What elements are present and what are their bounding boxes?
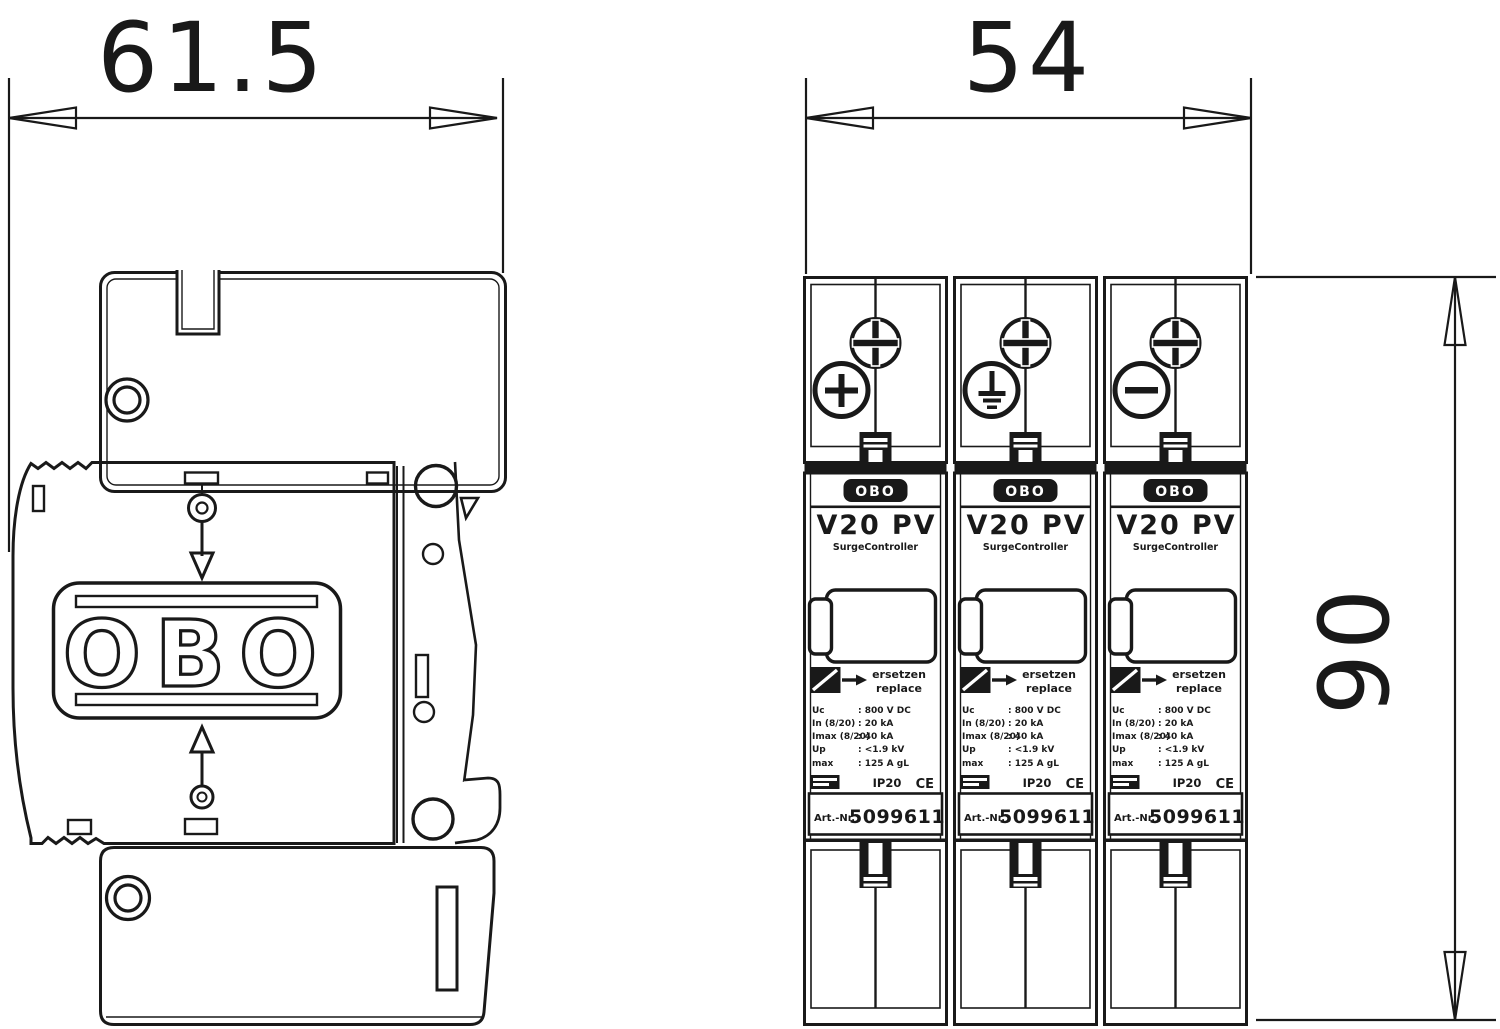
- spec-value: : 40 kA: [858, 732, 893, 742]
- technical-drawing-canvas: 61.5 54 90: [0, 0, 1500, 1029]
- obo-logo: OBO: [54, 583, 341, 718]
- art-number: 5099611: [1149, 806, 1245, 828]
- dimension-front-height: 90: [1256, 277, 1496, 1020]
- spec-label: Up: [812, 745, 826, 755]
- spec-label: max: [1112, 759, 1133, 769]
- spec-label: max: [962, 759, 983, 769]
- replace-label-en: replace: [1176, 682, 1222, 695]
- spec-value: : 125 A gL: [1158, 759, 1209, 769]
- module-brand: OBO: [1155, 484, 1195, 500]
- spec-label: Uc: [962, 706, 975, 716]
- dim-label-front-width: 54: [963, 2, 1093, 114]
- spec-label: Uc: [812, 706, 825, 716]
- spec-value: : 40 kA: [1158, 732, 1193, 742]
- spec-label: In (8/20): [812, 719, 855, 729]
- spec-label: Uc: [1112, 706, 1125, 716]
- spec-label: Up: [1112, 745, 1126, 755]
- ce-mark: CE: [1216, 777, 1234, 792]
- dimension-front-width: 54: [806, 2, 1251, 274]
- module-model: V20 PV: [817, 510, 935, 541]
- rail-notch: [461, 498, 478, 518]
- module-subtitle: SurgeController: [983, 542, 1069, 553]
- front-view: OBO V20 PV SurgeController ersetzen repl…: [805, 278, 1247, 1025]
- ip-rating: IP20: [1173, 776, 1202, 790]
- module-model: V20 PV: [1117, 510, 1235, 541]
- spec-value: : 40 kA: [1008, 732, 1043, 742]
- dim-label-side-width: 61.5: [97, 2, 327, 114]
- replace-label-de: ersetzen: [1172, 668, 1226, 681]
- spec-value: : 800 V DC: [1008, 706, 1061, 716]
- spec-value: : 800 V DC: [858, 706, 911, 716]
- ce-mark: CE: [1066, 777, 1084, 792]
- module-brand: OBO: [855, 484, 895, 500]
- rail-claw-top: [416, 466, 457, 507]
- ip-rating: IP20: [1023, 776, 1052, 790]
- art-number: 5099611: [999, 806, 1095, 828]
- spec-value: : 20 kA: [1158, 719, 1193, 729]
- art-number: 5099611: [849, 806, 945, 828]
- module-subtitle: SurgeController: [1133, 542, 1219, 553]
- bottom-housing: [101, 848, 495, 1025]
- ce-mark: CE: [916, 777, 934, 792]
- replace-label-en: replace: [876, 682, 922, 695]
- spec-label: Up: [962, 745, 976, 755]
- module-brand: OBO: [1005, 484, 1045, 500]
- housing-notch: [177, 267, 219, 333]
- spec-value: : <1.9 kV: [858, 745, 904, 755]
- replace-label-en: replace: [1026, 682, 1072, 695]
- spec-value: : 20 kA: [858, 719, 893, 729]
- module-1: OBO V20 PV SurgeController ersetzen repl…: [805, 278, 947, 1025]
- module-2: OBO V20 PV SurgeController ersetzen repl…: [955, 278, 1097, 1025]
- side-view: OBO: [13, 267, 506, 1025]
- replace-label-de: ersetzen: [1022, 668, 1076, 681]
- rail-slot: [437, 887, 457, 990]
- replace-label-de: ersetzen: [872, 668, 926, 681]
- spec-value: : 800 V DC: [1158, 706, 1211, 716]
- spec-value: : <1.9 kV: [1158, 745, 1204, 755]
- spec-label: In (8/20): [1112, 719, 1155, 729]
- obo-logo-text: OBO: [63, 601, 332, 708]
- spec-value: : 125 A gL: [858, 759, 909, 769]
- module-3: OBO V20 PV SurgeController ersetzen repl…: [1105, 278, 1247, 1025]
- spec-value: : <1.9 kV: [1008, 745, 1054, 755]
- rail-claw-bottom: [455, 778, 500, 843]
- dim-label-front-height: 90: [1299, 585, 1411, 715]
- dimension-drawing: 61.5 54 90: [0, 0, 1500, 1029]
- rear-housing: [101, 273, 506, 492]
- module-subtitle: SurgeController: [833, 542, 919, 553]
- module-model: V20 PV: [967, 510, 1085, 541]
- spec-label: In (8/20): [962, 719, 1005, 729]
- spec-label: max: [812, 759, 833, 769]
- spec-value: : 125 A gL: [1008, 759, 1059, 769]
- ip-rating: IP20: [873, 776, 902, 790]
- spec-value: : 20 kA: [1008, 719, 1043, 729]
